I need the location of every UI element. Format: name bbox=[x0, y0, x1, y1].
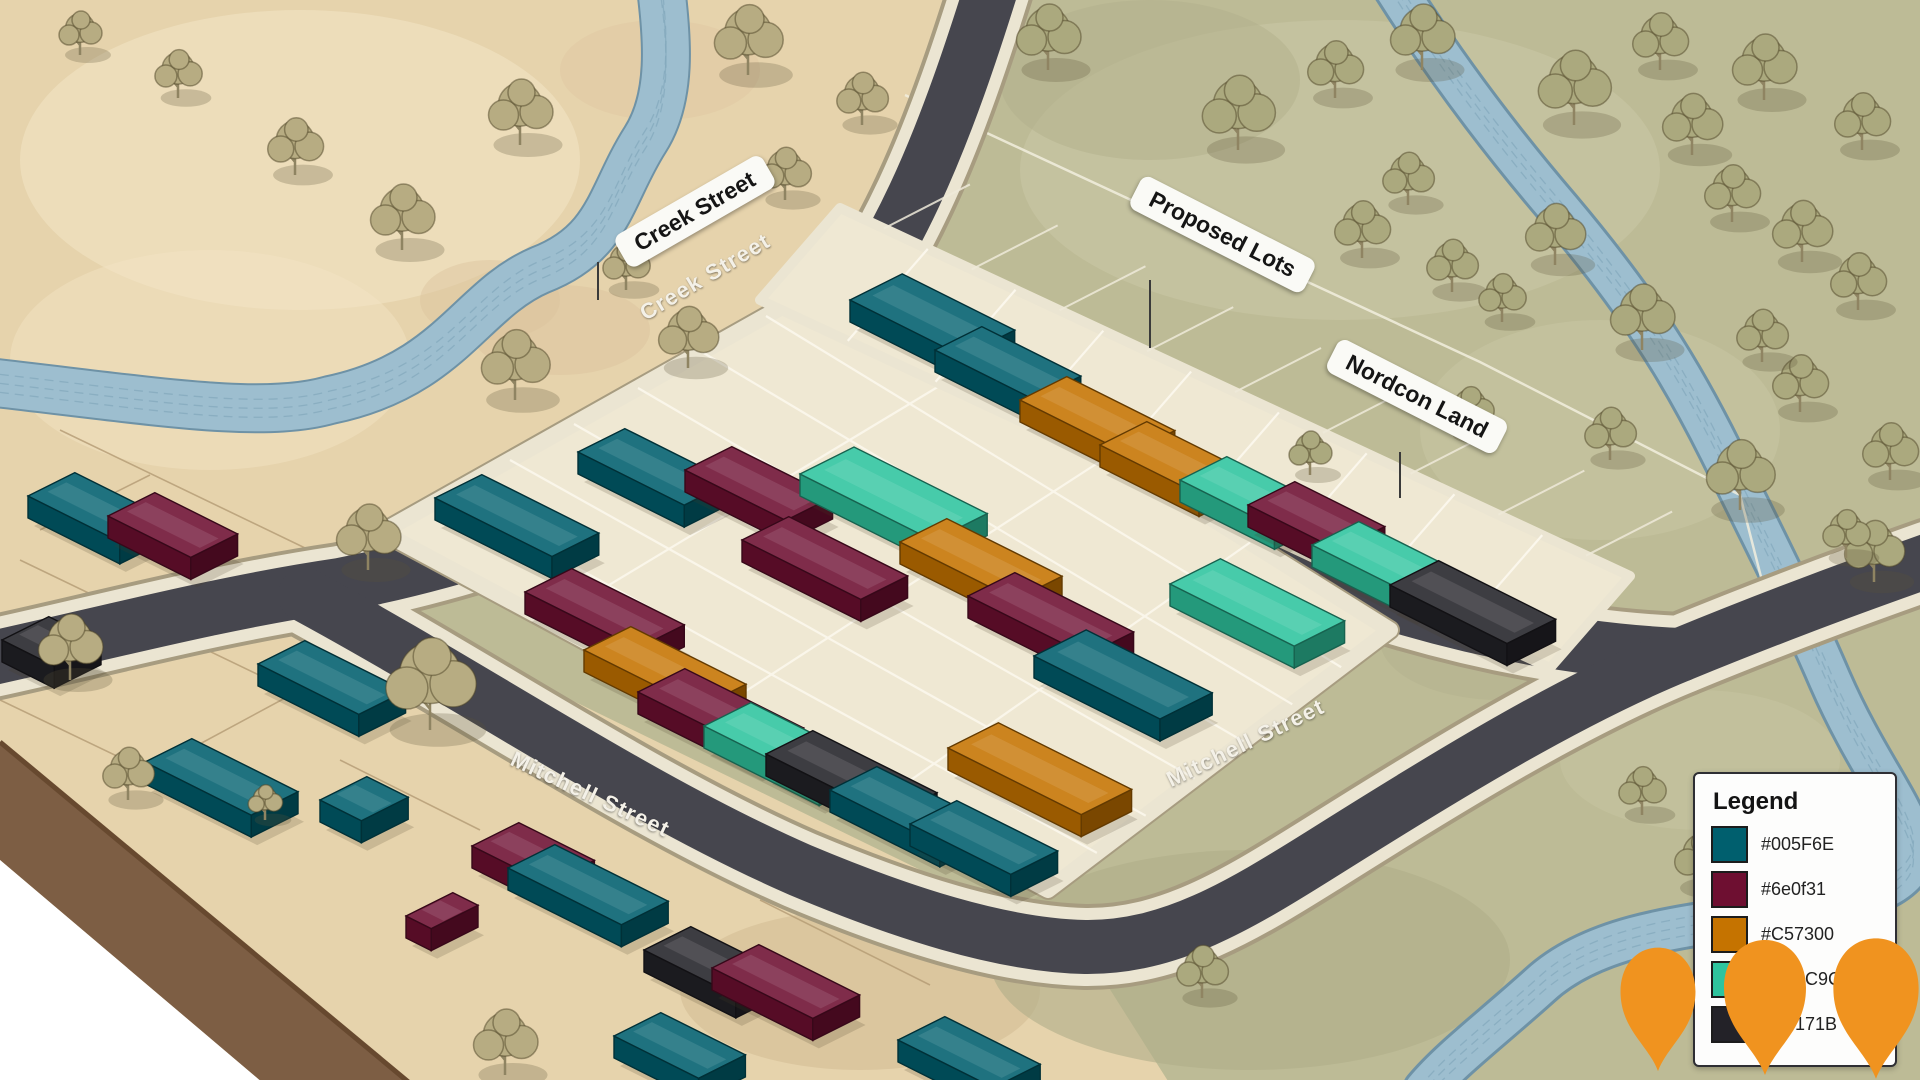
legend-label: #005F6E bbox=[1761, 834, 1834, 855]
map-pin-icon[interactable] bbox=[1824, 934, 1920, 1080]
legend-swatch-teal bbox=[1711, 826, 1748, 863]
legend-row: #005F6E bbox=[1711, 828, 1879, 861]
tree bbox=[714, 5, 792, 88]
tree bbox=[474, 1009, 548, 1080]
house-teal bbox=[145, 739, 304, 846]
house-maroon bbox=[108, 493, 244, 588]
subdivision-map: Creek Street Creek Street Mitchell Stree… bbox=[0, 0, 1920, 1080]
tree bbox=[837, 72, 898, 134]
tree bbox=[659, 306, 729, 379]
legend-title: Legend bbox=[1713, 788, 1879, 816]
legend-row: #6e0f31 bbox=[1711, 873, 1879, 906]
legend-label: #6e0f31 bbox=[1761, 879, 1826, 900]
map-pin-icon[interactable] bbox=[1714, 936, 1816, 1076]
map-pin-icon[interactable] bbox=[1612, 944, 1704, 1072]
house-maroon bbox=[406, 893, 484, 959]
map-canvas bbox=[0, 0, 1920, 1080]
tree bbox=[59, 11, 111, 63]
house-teal bbox=[320, 777, 414, 851]
legend-swatch-maroon bbox=[1711, 871, 1748, 908]
